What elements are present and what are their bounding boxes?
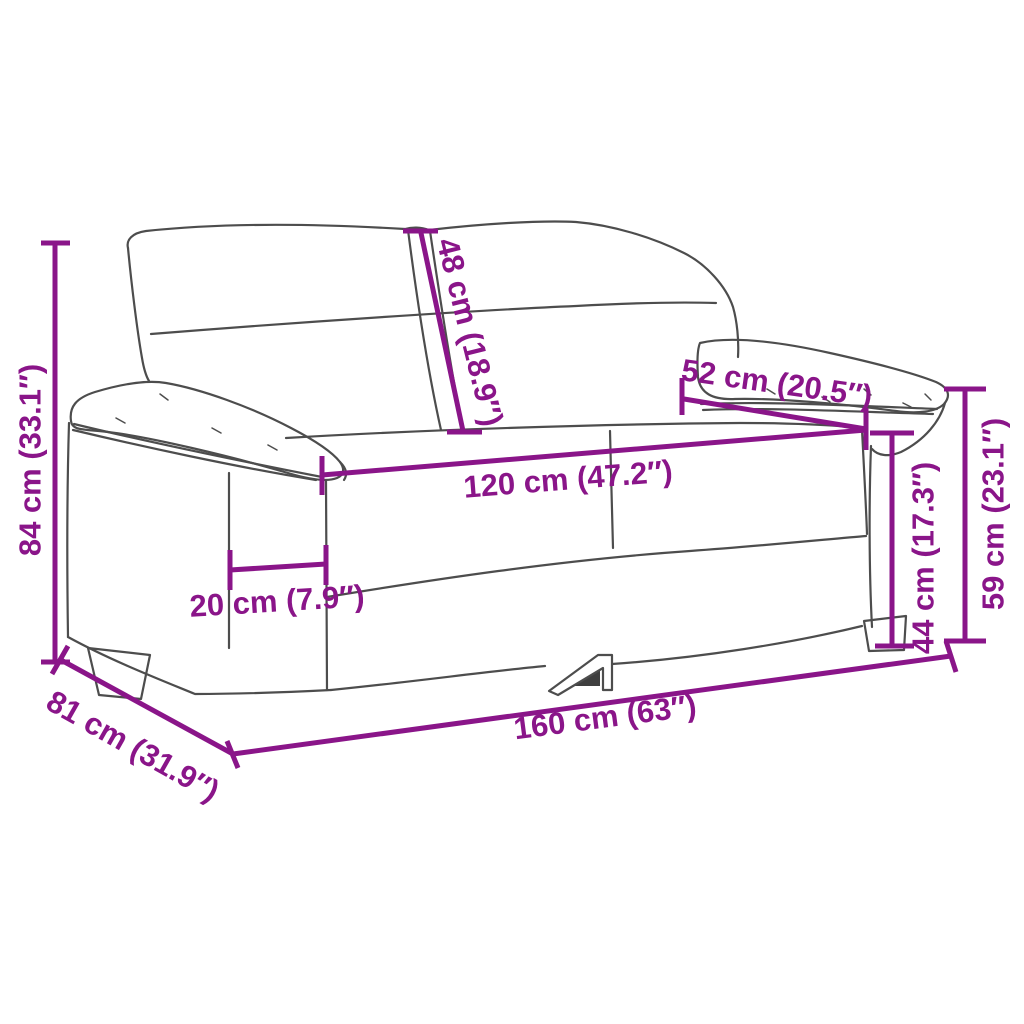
sofa-left-armrest-pad	[71, 382, 343, 480]
sofa-right-armrest-tip-curl	[872, 403, 945, 455]
sofa-center-sled-leg	[549, 655, 612, 695]
sofa-backrest-seam	[151, 303, 716, 334]
sofa-base-front-seam	[327, 536, 866, 597]
dim-label-armrest-width: 20 cm (7.9″)	[189, 578, 366, 624]
sofa-base-bottom-right	[612, 626, 862, 664]
diagram-canvas: 84 cm (33.1″) 48 cm (18.9″) 52 cm (20.5″…	[0, 0, 1024, 1024]
dim-label-overall-width: 160 cm (63″)	[512, 688, 699, 747]
sofa-right-body-edge	[870, 446, 872, 627]
sofa-left-body-edge	[67, 423, 69, 637]
sofa-base-bottom-left	[331, 666, 545, 690]
sofa-backrest-left-edge	[128, 248, 149, 381]
sofa-left-armrest-piping-2	[73, 430, 316, 480]
dim-label-seat-height: 44 cm (17.3″)	[906, 462, 941, 654]
sofa-dimension-diagram: 84 cm (33.1″) 48 cm (18.9″) 52 cm (20.5″…	[0, 0, 1024, 1024]
dim-label-armrest-height: 59 cm (23.1″)	[976, 418, 1011, 610]
dim-label-overall-height: 84 cm (33.1″)	[13, 364, 48, 556]
dimension-labels: 84 cm (33.1″) 48 cm (18.9″) 52 cm (20.5″…	[13, 234, 1011, 808]
